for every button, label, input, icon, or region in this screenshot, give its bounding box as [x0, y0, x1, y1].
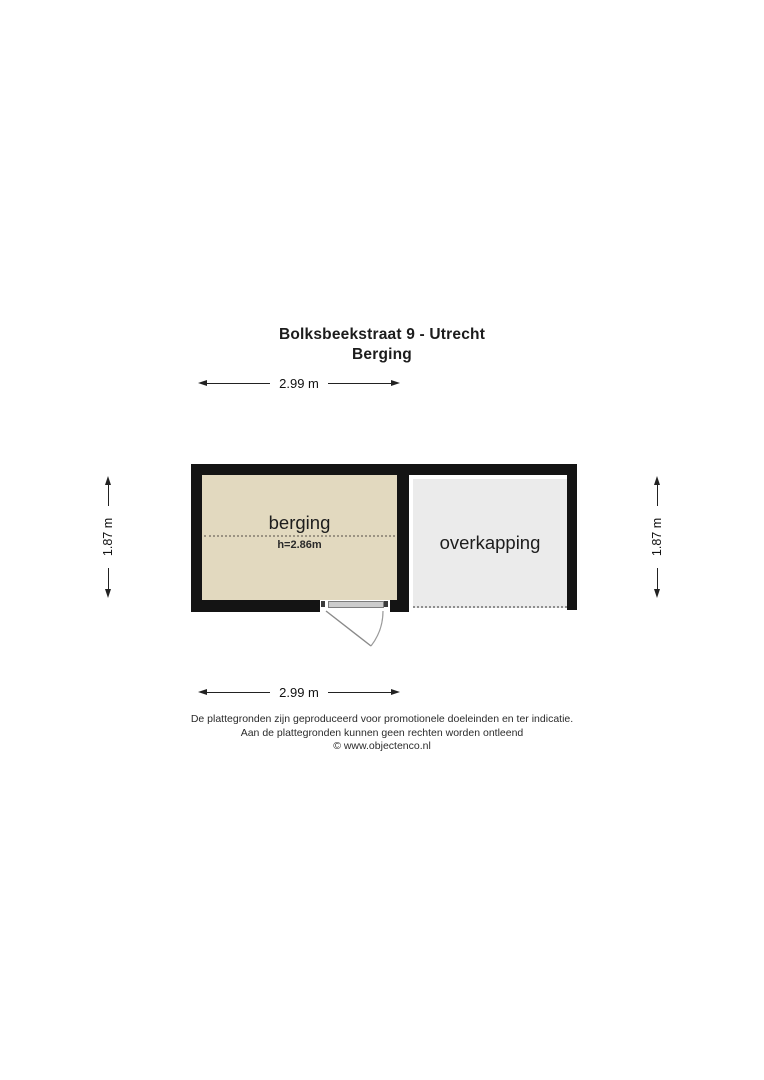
disclaimer-line-2: Aan de plattegronden kunnen geen rechten…	[0, 727, 764, 741]
dim-arrow-right-icon	[391, 689, 400, 695]
dim-line	[328, 383, 391, 384]
page-subtitle: Berging	[0, 346, 764, 364]
dim-line	[108, 485, 109, 506]
dim-arrow-left-icon	[198, 380, 207, 386]
room-overkapping: overkapping	[413, 479, 567, 608]
dimension-right: 1.87 m	[649, 476, 665, 598]
dimension-right-label: 1.87 m	[638, 506, 676, 568]
wall-middle	[397, 464, 409, 612]
dimension-top: 2.99 m	[198, 376, 400, 390]
dim-arrow-left-icon	[198, 689, 207, 695]
dim-line	[207, 383, 270, 384]
room-berging: berging h=2.86m	[202, 475, 397, 600]
dim-line	[328, 692, 391, 693]
dim-arrow-down-icon	[654, 589, 660, 598]
dim-line	[108, 568, 109, 589]
room-overkapping-label: overkapping	[440, 532, 541, 554]
wall-top	[191, 464, 577, 475]
dim-line	[207, 692, 270, 693]
dim-line	[657, 568, 658, 589]
dimension-left-label: 1.87 m	[89, 506, 127, 568]
wall-left	[191, 464, 202, 612]
dimension-left: 1.87 m	[100, 476, 116, 598]
footer-disclaimer: De plattegronden zijn geproduceerd voor …	[0, 713, 764, 754]
door-threshold	[328, 601, 384, 608]
floorplan-page: Bolksbeekstraat 9 - Utrecht Berging 2.99…	[0, 0, 764, 1080]
dim-line	[657, 485, 658, 506]
room-berging-midline	[204, 535, 395, 537]
dimension-top-label: 2.99 m	[270, 376, 328, 391]
page-title: Bolksbeekstraat 9 - Utrecht	[0, 326, 764, 344]
dimension-bottom-label: 2.99 m	[270, 685, 328, 700]
door-jamb-right	[384, 601, 388, 607]
dim-arrow-down-icon	[105, 589, 111, 598]
dimension-bottom: 2.99 m	[198, 685, 400, 699]
room-berging-height-note: h=2.86m	[202, 539, 397, 551]
wall-right	[567, 464, 577, 610]
dim-arrow-up-icon	[654, 476, 660, 485]
floorplan: berging h=2.86m overkapping	[191, 464, 577, 612]
room-berging-label: berging	[202, 512, 397, 534]
door-jamb-left	[321, 601, 325, 607]
dim-arrow-up-icon	[105, 476, 111, 485]
disclaimer-line-1: De plattegronden zijn geproduceerd voor …	[0, 713, 764, 727]
disclaimer-line-3: © www.objectenco.nl	[0, 740, 764, 754]
dim-arrow-right-icon	[391, 380, 400, 386]
